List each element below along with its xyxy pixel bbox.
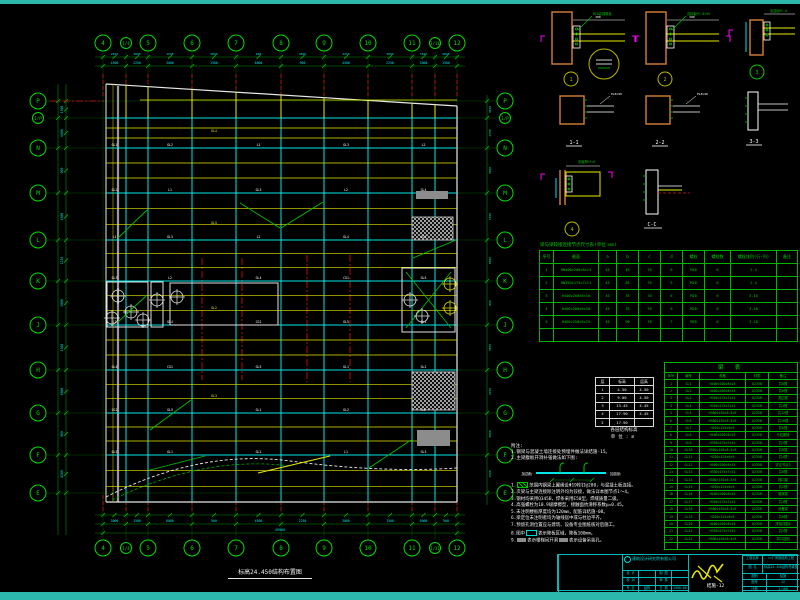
cell: Σ	[596, 418, 610, 426]
detail-2: 200连接板PL-8×902	[635, 11, 730, 86]
member-table-row: 6GL6H300×150×6.5×9Q235B共10根	[665, 417, 798, 424]
beam-mark: GL4	[256, 276, 262, 280]
cell: 70	[639, 264, 661, 277]
cell: 层高	[635, 378, 654, 386]
member-table-row: 8GL8H400×200×8×13Q235B与柱刚接	[665, 432, 798, 439]
cell: GL14	[678, 476, 700, 483]
leader	[672, 16, 686, 30]
cell	[700, 542, 746, 549]
dim-value: 900	[443, 519, 449, 523]
cell: GL13	[678, 469, 700, 476]
dim-value: 6000	[166, 519, 174, 523]
column	[646, 12, 666, 64]
cell: 45	[599, 303, 617, 316]
leader-text: 加劲肋PL-8	[770, 8, 787, 13]
top-strip	[0, 0, 800, 4]
beam-mark: GL4	[167, 320, 173, 324]
section-label: C-C	[647, 222, 656, 228]
cell: 螺栓数	[705, 251, 731, 264]
cell: 共6根	[769, 424, 798, 431]
dim-value: 6000	[488, 257, 492, 264]
cell	[678, 542, 700, 549]
cell: 3-10	[731, 316, 777, 329]
section-2-2: PL8×902-2	[646, 92, 708, 146]
red-axis-lines	[50, 74, 457, 513]
beam-mark: GL2	[211, 306, 217, 310]
cell: 90	[617, 316, 639, 329]
cell: GL4	[678, 402, 700, 409]
cell: 4	[596, 410, 610, 418]
cell: HN400×200×8×13	[554, 264, 599, 277]
stair-hatch	[412, 372, 455, 410]
note-line: 7.预留孔洞位置应与建筑、设备专业图纸核对后施工。	[511, 523, 661, 530]
cell: 6	[705, 316, 731, 329]
leader-text: 连接板PL-8×90	[687, 11, 710, 16]
cell: 45	[599, 290, 617, 303]
dim-value: 900	[211, 519, 217, 523]
cell: 备注	[777, 251, 798, 264]
beam-mark: L1	[344, 450, 348, 454]
beam-mark: GL3	[211, 394, 217, 398]
cell: H300×150×6.5×9	[700, 409, 746, 416]
dim-value: 2250	[60, 257, 64, 265]
cell: 4.50	[610, 386, 635, 394]
bolt	[576, 38, 578, 40]
cell: 6	[705, 264, 731, 277]
cell: 35	[617, 303, 639, 316]
beam-mark: CG1	[421, 235, 427, 239]
grid-bubble-label: G	[36, 410, 40, 417]
cell: 截面	[554, 251, 599, 264]
cell: Q235B	[746, 469, 769, 476]
cell: H250×125×6×9	[700, 424, 746, 431]
member-table-row: 14GL14H300×150×6.5×9Q235B梯口梁	[665, 476, 798, 483]
beam-mark: GL5	[167, 408, 173, 412]
cell: 8	[665, 432, 678, 439]
cell: a	[599, 251, 617, 264]
beam-mark: GL3	[421, 450, 427, 454]
member-table-row: 16GL16H400×200×8×13Q235B悬挑梁	[665, 491, 798, 498]
dim-value: 2250	[342, 52, 349, 56]
grid-bubble-label: P	[36, 98, 40, 105]
member-table-row: 22GL22H300×150×6.5×9Q235B洞口加固	[665, 535, 798, 542]
attachment-cell	[558, 555, 622, 592]
member-table-row: 3GL3H350×175×7×11Q235B洞边梁	[665, 395, 798, 402]
cell: H350×175×7×11	[700, 402, 746, 409]
cell: 17.90	[610, 418, 635, 426]
cell: H350×175×7×11	[700, 469, 746, 476]
beam-mark: GL3	[343, 143, 349, 147]
cell: 45	[617, 264, 639, 277]
cell: GL2	[678, 387, 700, 394]
member-table: 梁 表序号编号规格材质备注1GL1H400×200×8×13Q235B共8根2G…	[664, 362, 797, 550]
bolt-table-row: 5H400×250×8×254590707M2063-10	[540, 316, 798, 329]
cell: H350×175×7×11	[700, 498, 746, 505]
dim-value: 900	[488, 300, 492, 306]
break-mark	[729, 30, 733, 36]
detail-4: 双面焊hf=64	[541, 159, 612, 236]
bolt	[670, 38, 672, 40]
grid-bubble-label: 12	[453, 545, 461, 552]
bolt	[766, 24, 768, 26]
dim-value: 3000	[133, 52, 140, 56]
beam-mark: GL5	[211, 221, 217, 225]
cell: 6	[705, 290, 731, 303]
detail-number: 4	[570, 227, 573, 233]
sheet-name: 标高24.450结构布置图	[762, 564, 799, 573]
member-table-row: 19GL19H250×125×6×9Q235B共6根	[665, 513, 798, 520]
legend-swatch	[517, 482, 528, 488]
legend-swatch	[526, 530, 537, 536]
sign-value	[671, 577, 688, 584]
beam-mark: GL4	[421, 188, 427, 192]
dim-value: 3000	[166, 61, 174, 65]
cell: 2	[665, 387, 678, 394]
beam-mark: GL1	[167, 450, 173, 454]
beam-mark: GL1	[343, 365, 349, 369]
beam-mark: GL4	[211, 129, 217, 133]
cell: Q235B	[746, 380, 769, 387]
cell: 17.90	[610, 410, 635, 418]
grid-bubble-label: H	[503, 367, 507, 374]
dim-value: 4500	[299, 52, 306, 56]
cell: H400×200×8×20	[554, 303, 599, 316]
cell: 共8根	[769, 380, 798, 387]
bolt	[766, 34, 768, 36]
dim-value: 4500	[60, 470, 64, 478]
cell: 共4根	[769, 402, 798, 409]
cell: 35	[617, 290, 639, 303]
beam-mark: L1	[113, 235, 117, 239]
cell: 共4根	[769, 498, 798, 505]
cell: 1	[665, 380, 678, 387]
member-table-row: 序号编号规格材质备注	[665, 373, 798, 380]
cell	[731, 329, 777, 342]
detail-number: 3	[755, 70, 758, 76]
grid-bubble-label: 10	[364, 545, 372, 552]
section-C-C: C-C	[643, 170, 690, 228]
cell: Q235B	[746, 432, 769, 439]
cell: Q235B	[746, 506, 769, 513]
cell: Q235B	[746, 483, 769, 490]
cell: 3	[596, 402, 610, 410]
cell: H250×125×6×9	[700, 454, 746, 461]
grid-bubble-label: 8	[279, 40, 283, 47]
drawing-sheet[interactable]: 441/41/45566778899101011111/111/111212PP…	[0, 0, 800, 600]
grid-bubble-label: 1/P	[34, 116, 42, 121]
grid-bubble-label: 1/P	[501, 116, 509, 121]
dim-value: 3000	[386, 52, 393, 56]
sign-value	[638, 570, 655, 577]
footnote-line: 2.主梁腹板开洞补强做法如下图:	[511, 456, 671, 462]
sign-label: 审 核	[655, 577, 671, 584]
brace	[150, 400, 191, 430]
cell: d	[661, 251, 683, 264]
sign-value: 结构	[638, 585, 655, 592]
dim-value: 4500	[488, 106, 492, 113]
dim-value: 2250	[111, 52, 118, 56]
cell: 4.45	[635, 402, 654, 410]
member-table-title: 梁 表	[665, 363, 798, 373]
cell: H400×200×8×13	[700, 380, 746, 387]
cell: 3	[540, 290, 554, 303]
title-block: 建筑设计研究院有限公司设 计制 图校 对审 核专 业结构日 期2006.06结施…	[557, 554, 798, 591]
cell: H350×175×7×11	[700, 528, 746, 535]
cell	[665, 542, 678, 549]
cell: GL12	[678, 461, 700, 468]
grid-bubble-label: 4	[101, 545, 105, 552]
cell	[554, 329, 599, 342]
leader-text: 双面焊hf=6	[578, 159, 595, 164]
cell	[617, 329, 639, 342]
cell: M20	[683, 316, 705, 329]
equipment-pad	[416, 191, 448, 199]
beam-mark: GL1	[421, 320, 427, 324]
beam-mark: GL1	[256, 408, 262, 412]
cell: 5	[665, 409, 678, 416]
cell: GL11	[678, 454, 700, 461]
dim-value: 2250	[133, 61, 141, 65]
member-table-row: 17GL17H350×175×7×11Q235B共4根	[665, 498, 798, 505]
opening-outline	[170, 283, 278, 325]
bolt	[576, 28, 578, 30]
elevation-table-row: Σ17.90	[596, 418, 654, 426]
cell: 21	[665, 528, 678, 535]
grid-bubble-label: P	[503, 98, 507, 105]
sign-label: 设 计	[622, 570, 638, 577]
cell	[599, 329, 617, 342]
break-mark	[608, 172, 612, 178]
beam-mark: GL2	[343, 408, 349, 412]
grid-bubble-label: E	[36, 490, 40, 497]
grid-bubble-label: L	[36, 237, 40, 244]
member-table: 梁 表序号编号规格材质备注1GL1H400×200×8×13Q235B共8根2G…	[664, 362, 798, 550]
cell: Q235B	[746, 387, 769, 394]
elevation-table-row: 29.004.50	[596, 394, 654, 402]
brace	[150, 456, 205, 470]
cell	[661, 329, 683, 342]
cell: H300×150×6.5×9	[700, 417, 746, 424]
cell: 12	[665, 461, 678, 468]
detail-number: 1	[569, 77, 572, 83]
sign-label: 校 对	[622, 577, 638, 584]
cell: 共2根	[769, 528, 798, 535]
sheet-name-label: 图 名	[742, 564, 762, 573]
sign-label: 日 期	[655, 585, 671, 592]
cell: 70	[639, 303, 661, 316]
grid-bubble-label: 1/11	[430, 41, 440, 46]
grid-bubble-label: 1/4	[122, 546, 130, 551]
cell: GL6	[678, 417, 700, 424]
grid-bubble-label: 11	[408, 40, 416, 47]
legend-swatch	[517, 538, 526, 542]
bolt	[670, 28, 672, 30]
grid-bubble-label: F	[503, 452, 507, 459]
cell: 70	[639, 290, 661, 303]
cell: Q235B	[746, 454, 769, 461]
member-table-row: 9GL9H350×175×7×11Q235B共2根	[665, 439, 798, 446]
stiffener-hook	[584, 463, 588, 473]
cell	[777, 316, 798, 329]
member-table-row	[665, 542, 798, 549]
elevation-table-unit: 单位:m	[588, 435, 660, 440]
cell: 4.50	[635, 386, 654, 394]
beam-mark: L2	[422, 143, 426, 147]
beam-mark: GL5	[343, 320, 349, 324]
cell: M20	[683, 277, 705, 290]
column-section	[646, 96, 670, 124]
elevation-table: 层标高层高14.504.5029.004.50313.454.45417.904…	[595, 377, 654, 427]
cell: M20	[683, 264, 705, 277]
cell: H400×200×8×16	[554, 290, 599, 303]
beam-mark: CG1	[256, 320, 262, 324]
column	[750, 20, 763, 55]
elevation-table-row: 313.454.45	[596, 402, 654, 410]
leader-text: PL8×90	[611, 92, 622, 96]
column-section	[560, 96, 584, 124]
cell: Q235B	[746, 520, 769, 527]
cell: 7	[665, 424, 678, 431]
cell: Q235B	[746, 424, 769, 431]
cell: 6	[661, 264, 683, 277]
bolt-table-row: 3H400×200×8×164535706M2063-10	[540, 290, 798, 303]
note-line: 4.高强螺栓为10.9级摩擦型，接触面抗滑移系数μ=0.45。	[511, 503, 661, 510]
cell: 与柱刚接	[769, 432, 798, 439]
grid-bubble-label: 6	[190, 545, 194, 552]
bolt-table-title: 梁与梁铰接连接节点尺寸表(单位:mm)	[540, 243, 796, 249]
cell: 梯口梁	[769, 476, 798, 483]
member-table-row: 18GL18H300×150×6.5×9Q235B设备梁	[665, 506, 798, 513]
dim-value: 3000	[488, 430, 492, 437]
note-line: 8.图中表示降板区域，降板100mm。	[511, 530, 661, 538]
member-table-row: 15GL15H250×125×6×9Q235B共2根	[665, 483, 798, 490]
plate-section	[646, 170, 658, 214]
beam-mark: GL5	[421, 276, 427, 280]
beam-mark: L1	[257, 143, 261, 147]
dim-value: 6000	[420, 519, 428, 523]
elevation-table-caption: 各层结构标高	[588, 428, 660, 433]
bolt-table-row: 序号截面abcd螺栓螺栓数螺栓排列(行-列)备注	[540, 251, 798, 264]
cell: 9.00	[610, 394, 635, 402]
cell: 70	[639, 277, 661, 290]
beam-mark: GL2	[256, 450, 262, 454]
dim-value: 6000	[255, 61, 263, 65]
beam-mark: GL2	[112, 188, 118, 192]
cell: GL19	[678, 513, 700, 520]
dimension-lines: 4500225030002250300015003000150060001500…	[56, 52, 594, 535]
stair-hatch	[412, 217, 453, 240]
grid-bubble-label: J	[36, 322, 40, 329]
beam-mark: CG1	[112, 408, 118, 412]
dim-value: 4500	[111, 61, 119, 65]
grid-bubble-label: 7	[234, 40, 238, 47]
member-table-row: 13GL13H350×175×7×11Q235B共6根	[665, 469, 798, 476]
cell: H300×150×6.5×9	[700, 506, 746, 513]
cell: GL21	[678, 528, 700, 535]
dim-value: 6000	[442, 52, 449, 56]
cell: GL20	[678, 520, 700, 527]
dim-value: 1500	[420, 52, 427, 56]
cell: GL18	[678, 506, 700, 513]
meta-label: 比例	[742, 586, 766, 592]
beam-mark: GL1	[112, 143, 118, 147]
plan-title: 标高24.450结构布置图	[228, 569, 312, 579]
dim-value: 4500	[255, 519, 263, 523]
section-label: 3-3	[749, 139, 758, 145]
grid-bubble-label: H	[36, 367, 40, 374]
grid-bubble-label: K	[503, 278, 507, 285]
cell: 3-10	[731, 303, 777, 316]
beam-mark: GL3	[167, 235, 173, 239]
grid-bubble-label: 1/4	[122, 41, 130, 46]
section-label: 2-2	[655, 140, 664, 146]
cell: Q235B	[746, 535, 769, 542]
cell: 共12根	[769, 409, 798, 416]
dim-value: 3000	[111, 519, 119, 523]
cell: 45	[599, 316, 617, 329]
dim-value: 4500	[488, 344, 492, 351]
cell: 13	[665, 469, 678, 476]
bolt-table-row: 2HN350×175×7×114585705M2062-4	[540, 277, 798, 290]
dim-value: 900	[300, 61, 306, 65]
grid-bubble-label: F	[36, 452, 40, 459]
cell: 45	[599, 264, 617, 277]
bolt	[670, 43, 672, 45]
cell: 6	[705, 277, 731, 290]
cell: 悬挑梁	[769, 491, 798, 498]
dim-value: 3000	[342, 519, 350, 523]
cell: 15	[665, 483, 678, 490]
cell: 3	[665, 395, 678, 402]
brace	[369, 440, 411, 468]
cell: 2-4	[731, 264, 777, 277]
cell: 编号	[678, 373, 700, 380]
dim-value: 1500	[488, 470, 492, 477]
cell: H300×150×6.5×9	[700, 535, 746, 542]
cell	[777, 303, 798, 316]
cell: 18	[665, 506, 678, 513]
cell: H300×150×6.5×9	[700, 476, 746, 483]
beam-mark: L2	[113, 320, 117, 324]
company-logo-icon	[624, 556, 631, 563]
member-table-row: 20GL20H400×200×8×13Q235B拼接详图4	[665, 520, 798, 527]
detail-number: 2	[663, 77, 666, 83]
cell: GL16	[678, 491, 700, 498]
dim-value: 1500	[60, 344, 64, 352]
cell: 共8根	[769, 446, 798, 453]
grid-bubble-label: 5	[146, 545, 150, 552]
dim-value: 6000	[60, 129, 64, 137]
cell	[769, 542, 798, 549]
cell: 洞边梁	[769, 395, 798, 402]
company-name: 建筑设计研究院有限公司	[632, 556, 676, 561]
signature-stamp	[688, 560, 732, 586]
equipment-pad	[417, 430, 450, 446]
grid-bubble-label: 4	[101, 40, 105, 47]
bolt	[568, 178, 570, 180]
dim-value: 900	[256, 52, 262, 56]
bolt-table: 序号截面abcd螺栓螺栓数螺栓排列(行-列)备注1HN400×200×8×134…	[539, 250, 798, 342]
cell: Q235B	[746, 513, 769, 520]
beam-mark: GL4	[112, 365, 118, 369]
grid-bubble-label: M	[36, 190, 40, 197]
bolt	[568, 188, 570, 190]
dim-value: 1500	[210, 61, 218, 65]
member-table-row: 5GL5H300×150×6.5×9Q235B共12根	[665, 409, 798, 416]
cell: 层	[596, 378, 610, 386]
member-table-row: 10GL10H300×150×6.5×9Q235B共8根	[665, 446, 798, 453]
dim-value: 3000	[488, 167, 492, 174]
